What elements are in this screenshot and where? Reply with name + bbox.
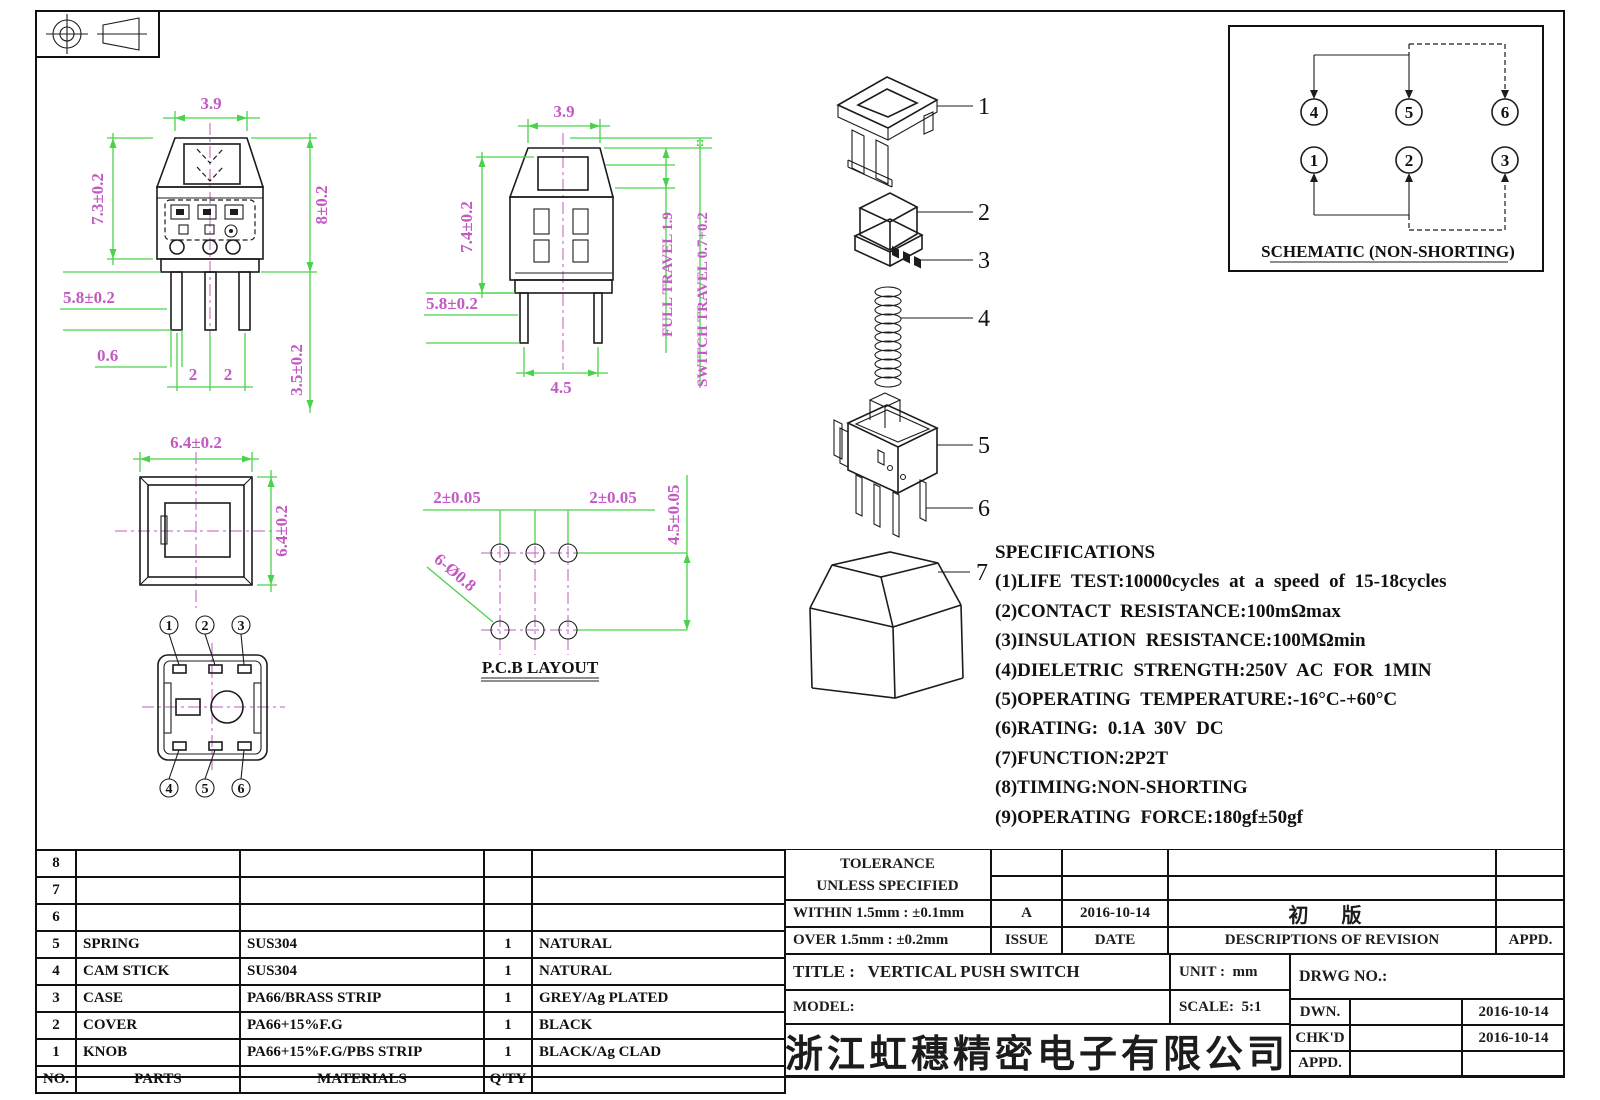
part-no: 2 bbox=[36, 1012, 76, 1039]
specifications-title: SPECIFICATIONS bbox=[995, 538, 1570, 567]
pin-number-6: 6 bbox=[238, 782, 245, 797]
chkd-date: 2016-10-14 bbox=[1462, 1025, 1565, 1051]
part-qty: 1 bbox=[484, 931, 532, 958]
pcb-dim-row-span: 4.5±0.05 bbox=[664, 485, 683, 545]
front-dim-height-left: 7.3±0.2 bbox=[88, 173, 107, 225]
pcb-dim-holes: 6-Ø0.8 bbox=[430, 550, 479, 596]
part-label-1: 1 bbox=[978, 94, 990, 120]
revision-description-label: DESCRIPTIONS OF REVISION bbox=[1168, 927, 1496, 954]
part-label-4: 4 bbox=[978, 306, 990, 332]
schematic-pin-2: 2 bbox=[1405, 151, 1414, 170]
top-dim-width: 6.4±0.2 bbox=[170, 433, 222, 452]
revision-empty bbox=[1062, 849, 1168, 876]
scale-label: SCALE: bbox=[1179, 999, 1234, 1016]
schematic-caption: SCHEMATIC (NON-SHORTING) bbox=[1261, 242, 1515, 261]
front-dim-pin-depth: 3.5±0.2 bbox=[287, 344, 306, 396]
table-row: 3 CASE PA66/BRASS STRIP 1 GREY/Ag PLATED bbox=[36, 985, 785, 1012]
pin-number-2: 2 bbox=[202, 619, 209, 634]
pcb-dim-pitch-left: 2±0.05 bbox=[433, 488, 481, 507]
part-color bbox=[532, 850, 785, 877]
pcb-layout-drawing: 2±0.05 2±0.05 4.5±0.05 6-Ø0.8 P.C.B LAYO… bbox=[405, 465, 715, 700]
side-dim-pin-length: 5.8±0.2 bbox=[426, 294, 478, 313]
schematic-box: 4 5 6 1 2 3 SCHEMATIC (NON-SHORTING) bbox=[1228, 25, 1544, 272]
part-label-2: 2 bbox=[978, 200, 990, 226]
part-no: 5 bbox=[36, 931, 76, 958]
part-material: PA66+15%F.G/PBS STRIP bbox=[240, 1039, 484, 1066]
footer-parts: PARTS bbox=[76, 1066, 240, 1093]
unit-label: UNIT : bbox=[1179, 964, 1225, 981]
pin-number-3: 3 bbox=[238, 619, 245, 634]
pin-number-4: 4 bbox=[166, 782, 173, 797]
dwn-name bbox=[1350, 999, 1462, 1025]
revision-empty bbox=[991, 849, 1062, 876]
revision-date-value: 2016-10-14 bbox=[1062, 900, 1168, 927]
company-name: 浙江虹穗精密电子有限公司 bbox=[784, 1024, 1290, 1076]
unit-value: mm bbox=[1232, 964, 1257, 981]
part-color: NATURAL bbox=[532, 931, 785, 958]
schematic-pin-6: 6 bbox=[1501, 103, 1510, 122]
appd-date bbox=[1462, 1051, 1565, 1076]
part-no: 6 bbox=[36, 904, 76, 931]
table-row: 8 bbox=[36, 850, 785, 877]
tolerance-line1: TOLERANCE bbox=[840, 853, 935, 875]
part-color: BLACK/Ag CLAD bbox=[532, 1039, 785, 1066]
drawing-sheet: 3.9 7.3±0.2 8±0.2 5.8±0.2 0.6 2 2 3.5±0.… bbox=[0, 0, 1600, 1100]
revision-issue-label: ISSUE bbox=[991, 927, 1062, 954]
part-no: 3 bbox=[36, 985, 76, 1012]
part-qty: 1 bbox=[484, 1012, 532, 1039]
part-qty: 1 bbox=[484, 1039, 532, 1066]
parts-table: 8 7 6 5 SPRING bbox=[35, 849, 786, 1094]
schematic-drawing: 4 5 6 1 2 3 SCHEMATIC (NON-SHORTING) bbox=[1230, 27, 1538, 266]
side-dim-pin-span: 4.5 bbox=[550, 378, 571, 397]
part-color: GREY/Ag PLATED bbox=[532, 985, 785, 1012]
part-no: 1 bbox=[36, 1039, 76, 1066]
front-dim-pin-width: 0.6 bbox=[97, 346, 118, 365]
model-cell: MODEL: bbox=[784, 990, 1170, 1024]
spec-item: (9)OPERATING FORCE:180gf±50gf bbox=[995, 803, 1570, 832]
scale-cell: SCALE: 5:1 bbox=[1170, 990, 1290, 1024]
part-material: PA66+15%F.G bbox=[240, 1012, 484, 1039]
footer-no: NO. bbox=[36, 1066, 76, 1093]
pcb-caption: P.C.B LAYOUT bbox=[482, 658, 599, 677]
table-row: 2 COVER PA66+15%F.G 1 BLACK bbox=[36, 1012, 785, 1039]
side-dim-full-travel: FULL TRAVEL 1.9 bbox=[660, 212, 676, 337]
tolerance-line2: UNLESS SPECIFIED bbox=[816, 875, 958, 897]
part-qty bbox=[484, 877, 532, 904]
footer-qty: Q'TY bbox=[484, 1066, 532, 1093]
front-dim-pitch-b: 2 bbox=[224, 365, 233, 384]
scale-value: 5:1 bbox=[1242, 999, 1262, 1016]
schematic-pin-4: 4 bbox=[1310, 103, 1319, 122]
pin-number-5: 5 bbox=[202, 782, 209, 797]
side-view-drawing: 3.9 7.4±0.2 5.8±0.2 4.5 FULL TRAVEL 1.9 … bbox=[420, 85, 720, 415]
part-color bbox=[532, 877, 785, 904]
spec-item: (8)TIMING:NON-SHORTING bbox=[995, 773, 1570, 802]
schematic-pin-5: 5 bbox=[1405, 103, 1414, 122]
part-color bbox=[532, 904, 785, 931]
schematic-pin-3: 3 bbox=[1501, 151, 1510, 170]
part-name: KNOB bbox=[76, 1039, 240, 1066]
part-material: SUS304 bbox=[240, 958, 484, 985]
unit-cell: UNIT : mm bbox=[1170, 954, 1290, 990]
part-material: SUS304 bbox=[240, 931, 484, 958]
model-label: MODEL: bbox=[793, 999, 855, 1016]
top-view-drawing: 6.4±0.2 6.4±0.2 bbox=[105, 430, 305, 620]
part-no: 4 bbox=[36, 958, 76, 985]
revision-empty bbox=[991, 876, 1062, 900]
table-row: 7 bbox=[36, 877, 785, 904]
side-dim-switch-travel: SWITCH TRAVEL 0.7+0.2 bbox=[695, 212, 711, 387]
spec-item: (5)OPERATING TEMPERATURE:-16°C-+60°C bbox=[995, 685, 1570, 714]
revision-appd-label: APPD. bbox=[1496, 927, 1565, 954]
front-dim-pin-length: 5.8±0.2 bbox=[63, 288, 115, 307]
part-color: NATURAL bbox=[532, 958, 785, 985]
spec-item: (6)RATING: 0.1A 30V DC bbox=[995, 714, 1570, 743]
chkd-name bbox=[1350, 1025, 1462, 1051]
spec-item: (7)FUNCTION:2P2T bbox=[995, 744, 1570, 773]
first-angle-projection-icon bbox=[37, 12, 158, 56]
table-row: 4 CAM STICK SUS304 1 NATURAL bbox=[36, 958, 785, 985]
tolerance-header: TOLERANCE UNLESS SPECIFIED bbox=[784, 849, 991, 900]
footer-materials: MATERIALS bbox=[240, 1066, 484, 1093]
side-dim-width: 3.9 bbox=[553, 102, 574, 121]
part-label-5: 5 bbox=[978, 433, 990, 459]
tolerance-over: OVER 1.5mm : ±0.2mm bbox=[784, 927, 991, 954]
table-row: 5 SPRING SUS304 1 NATURAL bbox=[36, 931, 785, 958]
part-label-3: 3 bbox=[978, 248, 990, 274]
part-material: PA66/BRASS STRIP bbox=[240, 985, 484, 1012]
exploded-view-drawing: 1 2 3 4 5 6 7 bbox=[790, 60, 1005, 715]
part-name: COVER bbox=[76, 1012, 240, 1039]
pcb-dim-pitch-right: 2±0.05 bbox=[589, 488, 637, 507]
bottom-view-drawing: 1 2 3 4 5 6 bbox=[130, 595, 320, 810]
part-name bbox=[76, 904, 240, 931]
part-label-7: 7 bbox=[976, 560, 988, 586]
part-no: 8 bbox=[36, 850, 76, 877]
front-dim-height-right: 8±0.2 bbox=[312, 185, 331, 224]
part-color: BLACK bbox=[532, 1012, 785, 1039]
title-cell: TITLE : VERTICAL PUSH SWITCH bbox=[784, 954, 1170, 990]
table-row: 1 KNOB PA66+15%F.G/PBS STRIP 1 BLACK/Ag … bbox=[36, 1039, 785, 1066]
spec-item: (2)CONTACT RESISTANCE:100mΩmax bbox=[995, 597, 1570, 626]
appd-label: APPD. bbox=[1290, 1051, 1350, 1076]
revision-empty bbox=[1062, 876, 1168, 900]
revision-issue-value: A bbox=[991, 900, 1062, 927]
dwn-date: 2016-10-14 bbox=[1462, 999, 1565, 1025]
table-row: 6 bbox=[36, 904, 785, 931]
revision-empty bbox=[1168, 876, 1496, 900]
revision-empty bbox=[1496, 876, 1565, 900]
pin-number-1: 1 bbox=[166, 619, 173, 634]
title-label: TITLE : bbox=[793, 962, 855, 982]
title-value: VERTICAL PUSH SWITCH bbox=[868, 962, 1080, 982]
revision-date-label: DATE bbox=[1062, 927, 1168, 954]
part-qty: 1 bbox=[484, 958, 532, 985]
footer-color bbox=[532, 1066, 785, 1093]
part-name: CASE bbox=[76, 985, 240, 1012]
part-name: CAM STICK bbox=[76, 958, 240, 985]
revision-empty bbox=[1496, 849, 1565, 876]
part-material bbox=[240, 850, 484, 877]
part-name bbox=[76, 850, 240, 877]
spec-item: (4)DIELETRIC STRENGTH:250V AC FOR 1MIN bbox=[995, 656, 1570, 685]
specifications-block: SPECIFICATIONS (1)LIFE TEST:10000cycles … bbox=[995, 538, 1570, 832]
revision-appd-value bbox=[1496, 900, 1565, 927]
part-qty bbox=[484, 850, 532, 877]
chkd-label: CHK'D bbox=[1290, 1025, 1350, 1051]
spec-item: (3)INSULATION RESISTANCE:100MΩmin bbox=[995, 626, 1570, 655]
part-material bbox=[240, 904, 484, 931]
spec-item: (1)LIFE TEST:10000cycles at a speed of 1… bbox=[995, 567, 1570, 596]
front-view-drawing: 3.9 7.3±0.2 8±0.2 5.8±0.2 0.6 2 2 3.5±0.… bbox=[55, 65, 385, 425]
projection-symbol-box bbox=[35, 10, 160, 58]
part-material bbox=[240, 877, 484, 904]
appd-name bbox=[1350, 1051, 1462, 1076]
side-dim-height: 7.4±0.2 bbox=[457, 201, 476, 253]
revision-description-value: 初 版 bbox=[1168, 900, 1496, 927]
part-label-6: 6 bbox=[978, 496, 990, 522]
part-qty: 1 bbox=[484, 985, 532, 1012]
table-footer-row: NO. PARTS MATERIALS Q'TY bbox=[36, 1066, 785, 1093]
title-block: TOLERANCE UNLESS SPECIFIED WITHIN 1.5mm … bbox=[784, 849, 1565, 1076]
drwg-cell: DRWG NO.: bbox=[1290, 954, 1565, 999]
front-dim-width: 3.9 bbox=[200, 94, 221, 113]
schematic-pin-1: 1 bbox=[1310, 151, 1319, 170]
drwg-label: DRWG NO.: bbox=[1299, 968, 1387, 986]
tolerance-within: WITHIN 1.5mm : ±0.1mm bbox=[784, 900, 991, 927]
part-no: 7 bbox=[36, 877, 76, 904]
dwn-label: DWN. bbox=[1290, 999, 1350, 1025]
part-qty bbox=[484, 904, 532, 931]
top-dim-height: 6.4±0.2 bbox=[272, 505, 291, 557]
part-name bbox=[76, 877, 240, 904]
revision-empty bbox=[1168, 849, 1496, 876]
front-dim-pitch-a: 2 bbox=[189, 365, 198, 384]
part-name: SPRING bbox=[76, 931, 240, 958]
